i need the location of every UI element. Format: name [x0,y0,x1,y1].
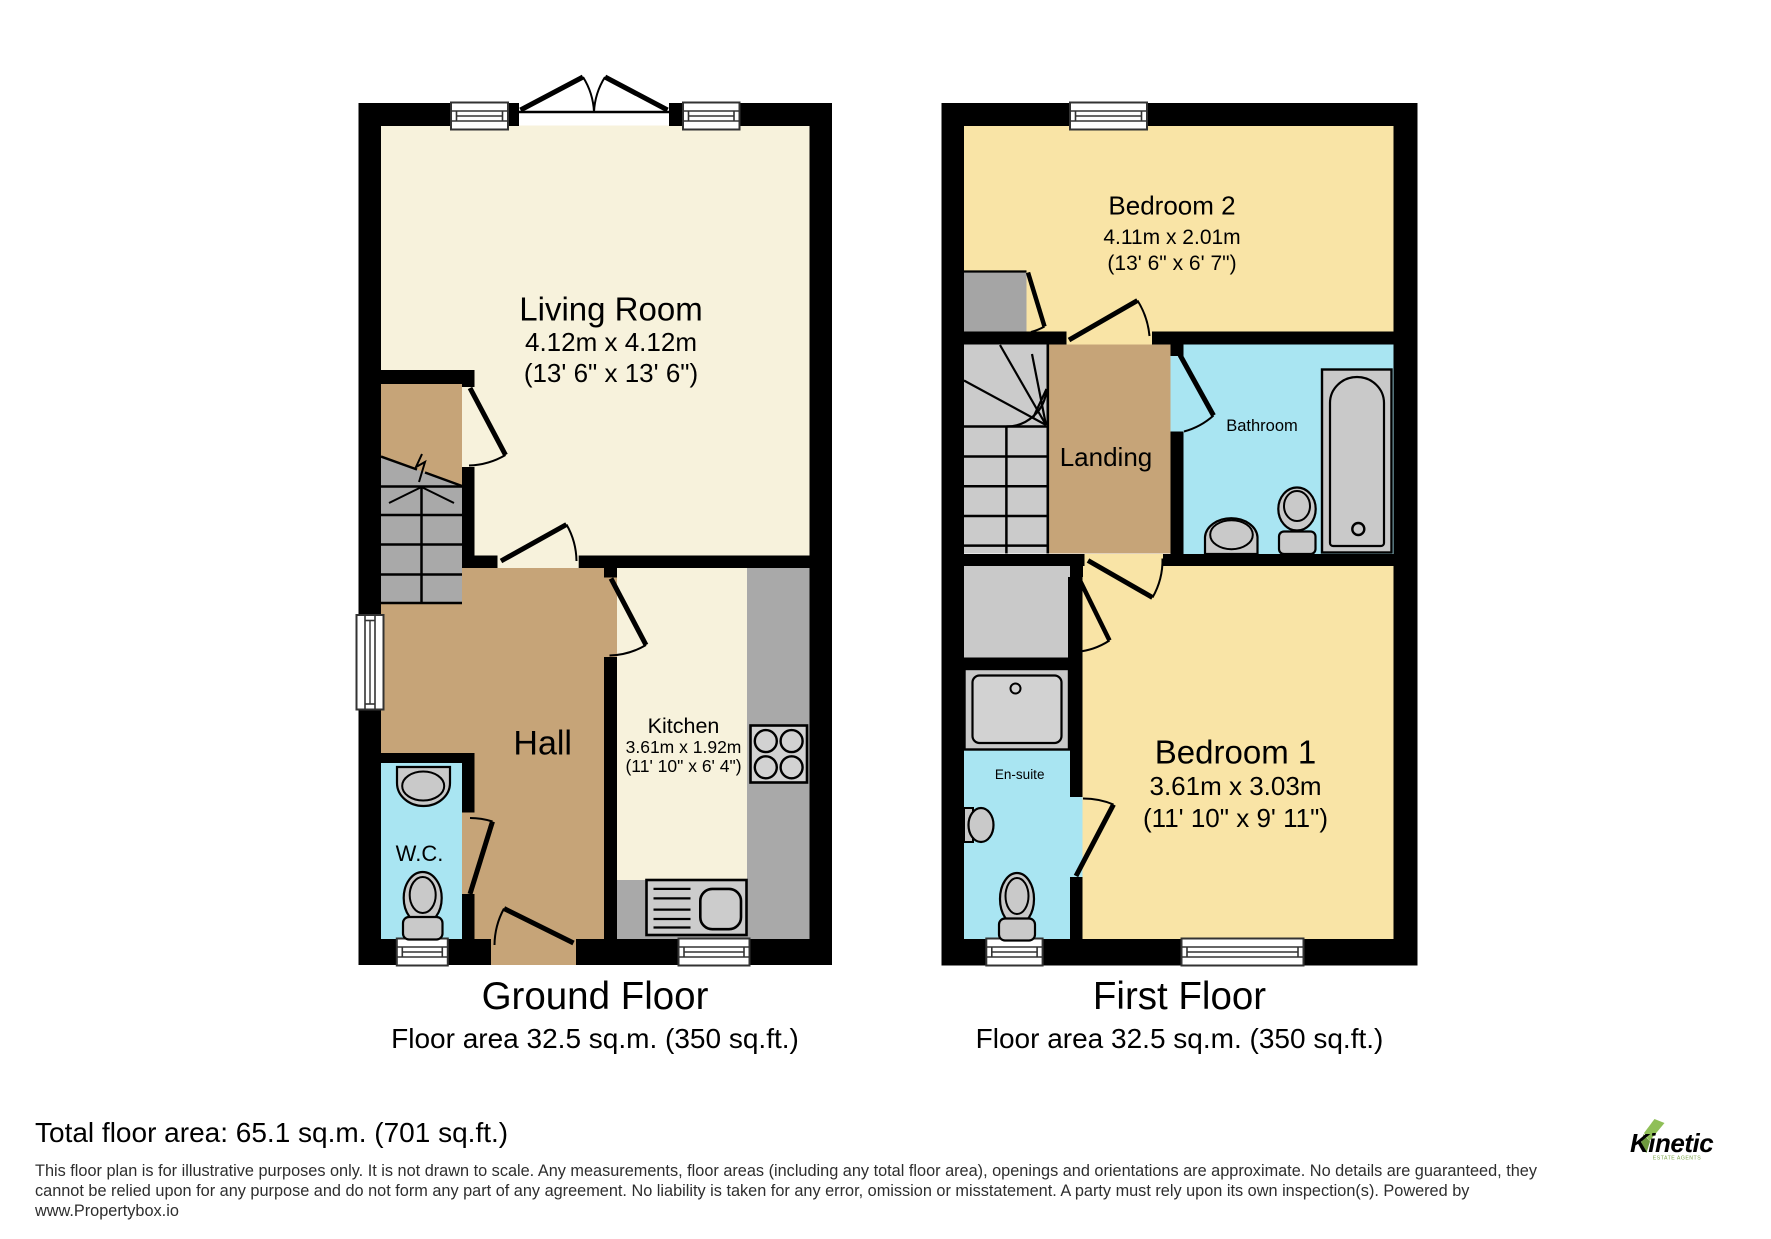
svg-text:Landing: Landing [1060,442,1153,472]
svg-text:cannot be relied upon for any: cannot be relied upon for any purpose an… [35,1182,1470,1200]
svg-text:(11' 10" x 6' 4"): (11' 10" x 6' 4") [625,756,741,776]
svg-text:Living Room: Living Room [519,291,702,328]
svg-text:www.Propertybox.io: www.Propertybox.io [34,1202,179,1220]
svg-text:Total floor area: 65.1 sq.m. (: Total floor area: 65.1 sq.m. (701 sq.ft.… [35,1117,508,1148]
svg-text:Ground Floor: Ground Floor [482,975,709,1018]
svg-text:Hall: Hall [513,725,572,763]
svg-text:Bedroom 1: Bedroom 1 [1155,734,1316,771]
svg-text:(13' 6" x 6' 7"): (13' 6" x 6' 7") [1107,252,1236,275]
svg-text:ESTATE AGENTS: ESTATE AGENTS [1653,1156,1701,1162]
svg-text:3.61m x 3.03m: 3.61m x 3.03m [1150,771,1322,801]
svg-text:Bedroom 2: Bedroom 2 [1108,191,1235,221]
svg-text:First Floor: First Floor [1093,975,1266,1018]
svg-text:En-suite: En-suite [995,767,1045,782]
svg-text:This floor plan is for illustr: This floor plan is for illustrative purp… [35,1162,1538,1180]
svg-text:Bathroom: Bathroom [1226,417,1298,435]
svg-text:(13' 6" x 13' 6"): (13' 6" x 13' 6") [524,358,698,388]
svg-text:Kitchen: Kitchen [648,714,720,738]
svg-text:3.61m x 1.92m: 3.61m x 1.92m [626,737,742,757]
svg-text:(11' 10" x 9' 11"): (11' 10" x 9' 11") [1143,803,1328,833]
svg-text:4.11m x 2.01m: 4.11m x 2.01m [1103,226,1240,249]
svg-text:Floor area 32.5 sq.m. (350 sq.: Floor area 32.5 sq.m. (350 sq.ft.) [976,1023,1384,1054]
svg-text:Kinetic: Kinetic [1630,1128,1714,1158]
svg-text:4.12m x 4.12m: 4.12m x 4.12m [525,327,697,357]
svg-text:W.C.: W.C. [396,841,444,866]
svg-text:Floor area 32.5 sq.m. (350 sq.: Floor area 32.5 sq.m. (350 sq.ft.) [391,1023,799,1054]
